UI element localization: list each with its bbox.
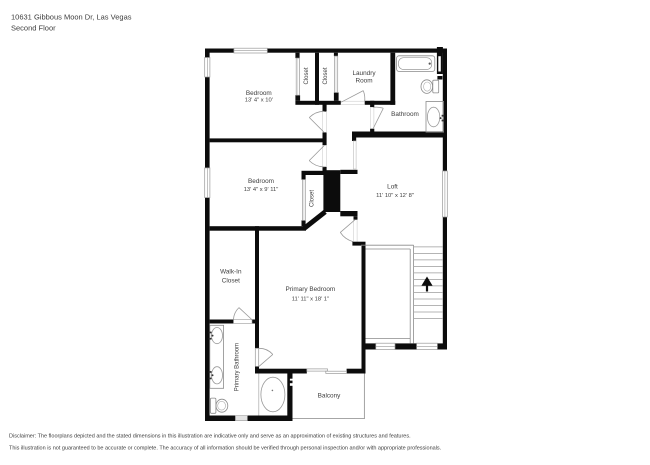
svg-text:Laundry: Laundry — [352, 70, 376, 77]
svg-text:Walk-In: Walk-In — [220, 269, 242, 276]
svg-text:Closet: Closet — [222, 277, 240, 284]
svg-text:Bathroom: Bathroom — [391, 111, 419, 118]
svg-text:13' 4" x 9' 11": 13' 4" x 9' 11" — [244, 187, 279, 193]
svg-text:Disclaimer: The floorplans dep: Disclaimer: The floorplans depicted and … — [9, 434, 411, 440]
svg-text:Bedroom: Bedroom — [246, 90, 272, 97]
svg-text:Closet: Closet — [323, 67, 329, 84]
svg-text:Closet: Closet — [304, 67, 310, 84]
svg-text:13' 4" x 10': 13' 4" x 10' — [245, 97, 273, 103]
svg-text:Primary Bathroom: Primary Bathroom — [234, 343, 240, 391]
svg-text:11' 10" x 12' 8": 11' 10" x 12' 8" — [376, 193, 414, 199]
svg-text:10631 Gibbous Moon Dr, Las Veg: 10631 Gibbous Moon Dr, Las Vegas — [11, 13, 132, 22]
svg-text:Second Floor: Second Floor — [11, 24, 56, 33]
svg-text:Loft: Loft — [387, 183, 398, 190]
svg-text:Bedroom: Bedroom — [248, 178, 274, 185]
svg-text:Balcony: Balcony — [318, 392, 342, 399]
svg-text:11' 11" x 18' 1": 11' 11" x 18' 1" — [292, 297, 329, 303]
svg-text:Primary Bedroom: Primary Bedroom — [286, 286, 336, 293]
svg-text:This illustration is not guara: This illustration is not guaranteed to b… — [9, 445, 442, 451]
svg-text:Closet: Closet — [310, 190, 316, 207]
svg-text:Room: Room — [355, 77, 372, 84]
